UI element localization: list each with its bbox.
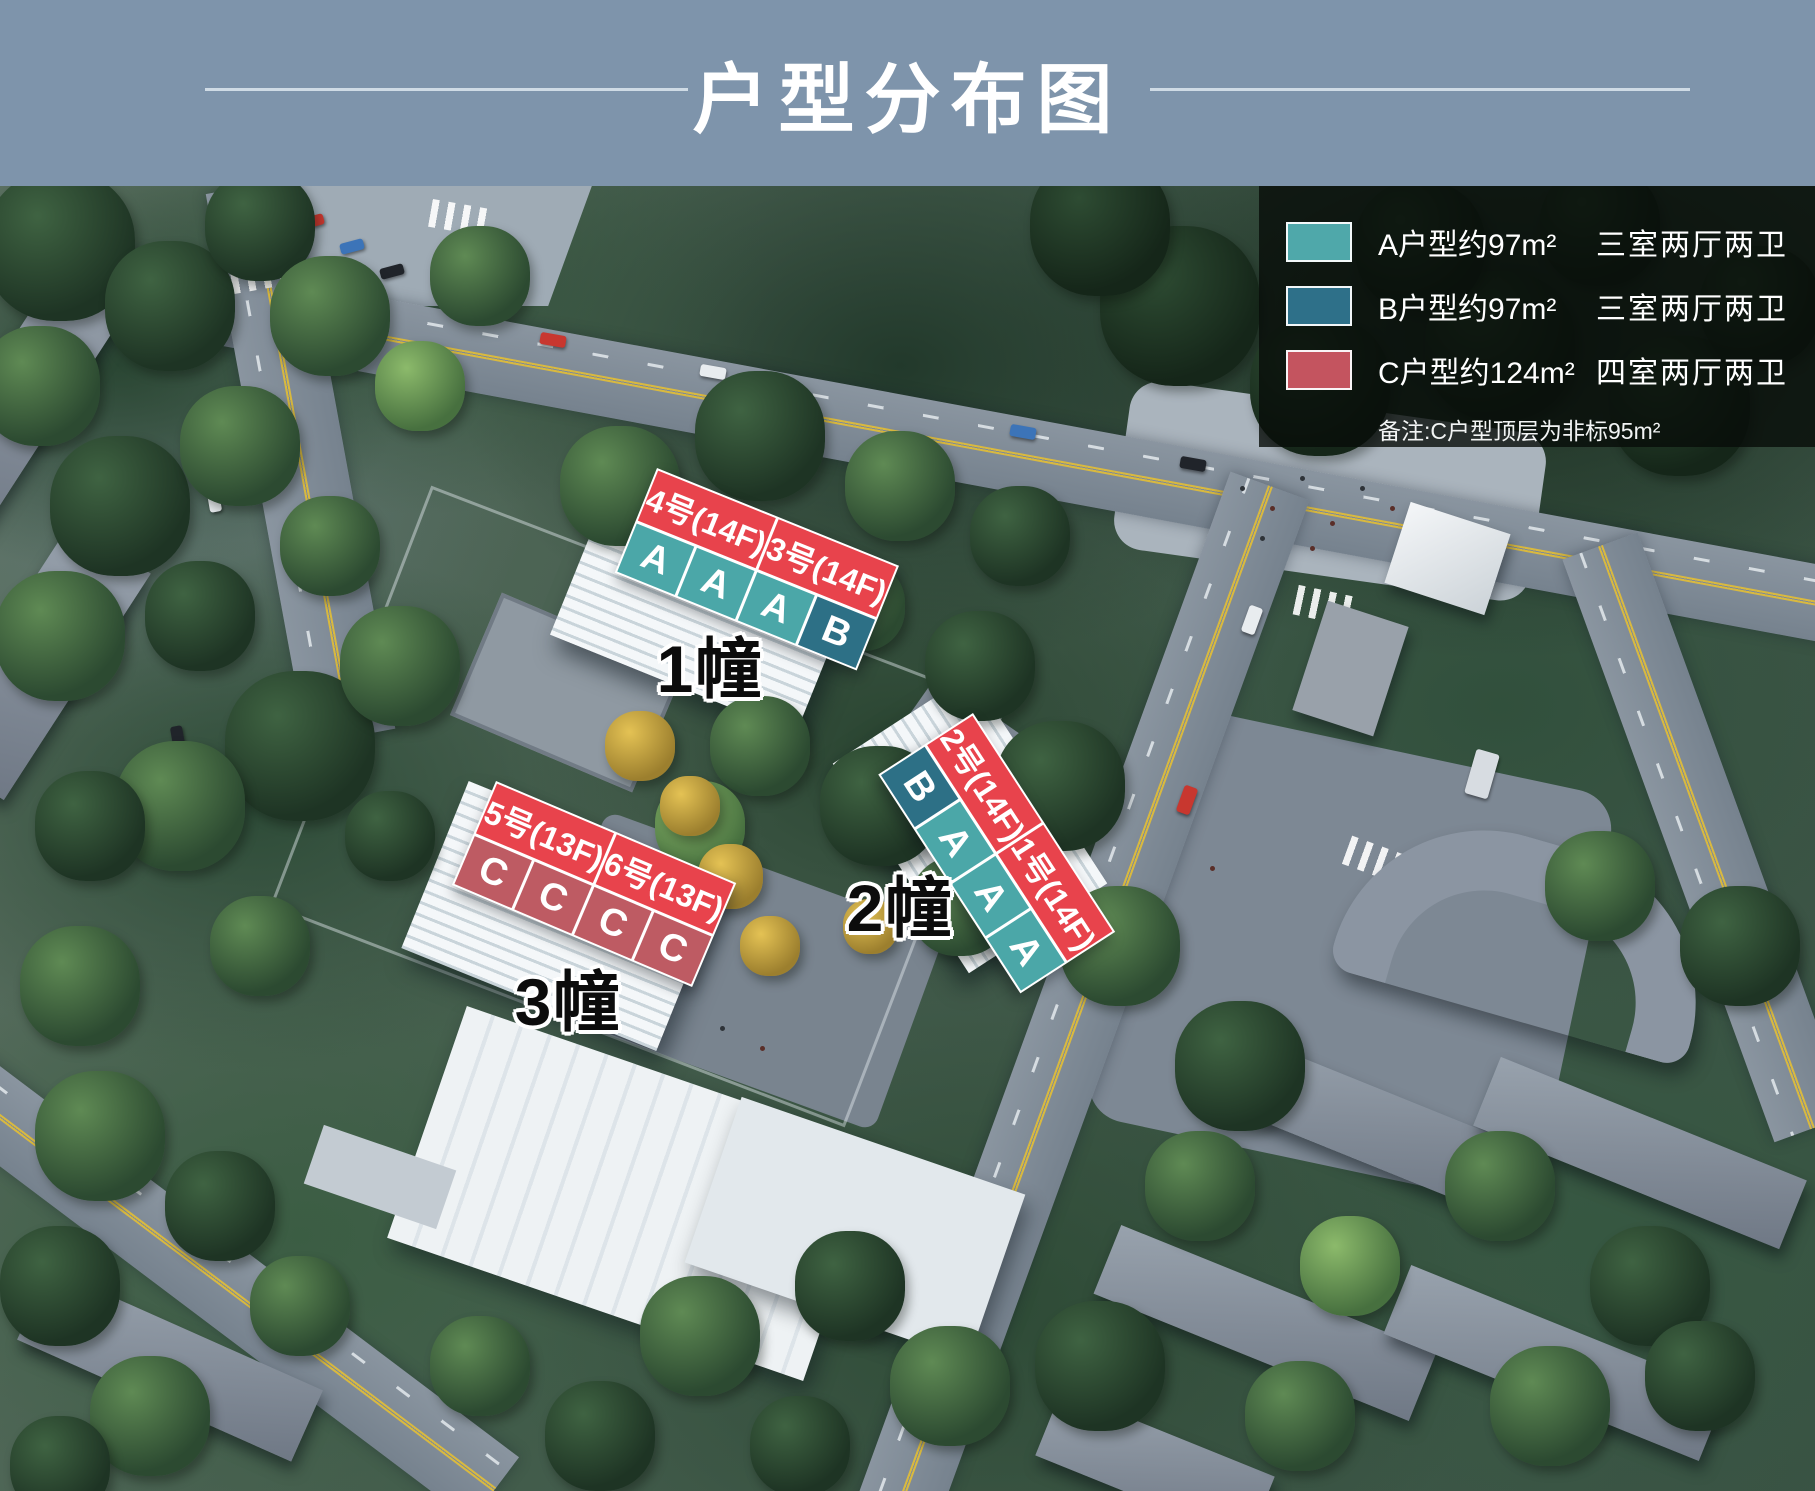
building-label-3: 3幢 bbox=[515, 949, 622, 1045]
legend-swatch-b bbox=[1286, 286, 1352, 326]
pedestrian-dot bbox=[720, 1026, 725, 1031]
tree-canopy bbox=[925, 611, 1035, 721]
tree-canopy bbox=[270, 256, 390, 376]
tree-canopy bbox=[35, 1071, 165, 1201]
tree-canopy bbox=[640, 1276, 760, 1396]
tree-canopy bbox=[1175, 1001, 1305, 1131]
legend-note: 备注:C户型顶层为非标95m² bbox=[1378, 412, 1799, 446]
tree-canopy bbox=[750, 1396, 850, 1491]
tree-canopy bbox=[210, 896, 310, 996]
legend-item-c: C户型约124m² 四室两厅两卫 bbox=[1286, 348, 1799, 392]
tree-canopy bbox=[1300, 1216, 1400, 1316]
tree-canopy bbox=[0, 326, 100, 446]
tree-canopy bbox=[375, 341, 465, 431]
tree-canopy bbox=[1490, 1346, 1610, 1466]
legend-item-desc: 三室两厅两卫 bbox=[1596, 284, 1788, 328]
building-label-1: 1幢 bbox=[657, 616, 764, 712]
tree-canopy bbox=[1680, 886, 1800, 1006]
pedestrian-dot bbox=[1360, 486, 1365, 491]
tree-canopy bbox=[180, 386, 300, 506]
legend-item-label: B户型约97m² bbox=[1378, 284, 1596, 328]
tree-canopy bbox=[970, 486, 1070, 586]
tree-canopy bbox=[0, 1226, 120, 1346]
tree-canopy bbox=[0, 571, 125, 701]
pedestrian-dot bbox=[1390, 506, 1395, 511]
pedestrian-dot bbox=[1310, 546, 1315, 551]
tree-canopy bbox=[35, 771, 145, 881]
tree-canopy bbox=[20, 926, 140, 1046]
tree-canopy bbox=[1145, 1131, 1255, 1241]
page-header: 户型分布图 bbox=[0, 0, 1815, 186]
aerial-site-map: 4号(14F) 3号(14F) A A A B 2号(14F) 1号(14F) … bbox=[0, 186, 1815, 1491]
legend-panel: A户型约97m² 三室两厅两卫 B户型约97m² 三室两厅两卫 C户型约124m… bbox=[1259, 186, 1815, 447]
legend-swatch-c bbox=[1286, 350, 1352, 390]
tree-canopy bbox=[795, 1231, 905, 1341]
tree-canopy bbox=[545, 1381, 655, 1491]
tree-canopy bbox=[845, 431, 955, 541]
tree-canopy bbox=[1445, 1131, 1555, 1241]
tree-canopy bbox=[1245, 1361, 1355, 1471]
tree-canopy bbox=[165, 1151, 275, 1261]
tree-canopy bbox=[340, 606, 460, 726]
unit-distribution-page: 户型分布图 bbox=[0, 0, 1815, 1491]
tree-canopy bbox=[740, 916, 800, 976]
page-title: 户型分布图 bbox=[0, 0, 1815, 186]
tree-canopy bbox=[660, 776, 720, 836]
legend-item-a: A户型约97m² 三室两厅两卫 bbox=[1286, 220, 1799, 264]
pedestrian-dot bbox=[1330, 521, 1335, 526]
tree-canopy bbox=[1545, 831, 1655, 941]
tree-canopy bbox=[605, 711, 675, 781]
tree-canopy bbox=[695, 371, 825, 501]
tree-canopy bbox=[345, 791, 435, 881]
tree-canopy bbox=[430, 226, 530, 326]
legend-item-desc: 四室两厅两卫 bbox=[1596, 348, 1788, 392]
legend-item-label: A户型约97m² bbox=[1378, 220, 1596, 264]
tree-canopy bbox=[1645, 1321, 1755, 1431]
legend-item-desc: 三室两厅两卫 bbox=[1596, 220, 1788, 264]
legend-swatch-a bbox=[1286, 222, 1352, 262]
tree-canopy bbox=[145, 561, 255, 671]
tree-canopy bbox=[250, 1256, 350, 1356]
tree-canopy bbox=[50, 436, 190, 576]
pedestrian-dot bbox=[1260, 536, 1265, 541]
pedestrian-dot bbox=[760, 1046, 765, 1051]
legend-item-b: B户型约97m² 三室两厅两卫 bbox=[1286, 284, 1799, 328]
gatehouse bbox=[1292, 601, 1408, 737]
tree-canopy bbox=[280, 496, 380, 596]
tree-canopy bbox=[890, 1326, 1010, 1446]
tree-canopy bbox=[10, 1416, 110, 1491]
pedestrian-dot bbox=[1300, 476, 1305, 481]
pedestrian-dot bbox=[1240, 486, 1245, 491]
pedestrian-dot bbox=[1210, 866, 1215, 871]
tree-canopy bbox=[430, 1316, 530, 1416]
tree-canopy bbox=[1035, 1301, 1165, 1431]
pedestrian-dot bbox=[1270, 506, 1275, 511]
legend-item-label: C户型约124m² bbox=[1378, 348, 1596, 392]
building-label-2: 2幢 bbox=[847, 855, 954, 951]
